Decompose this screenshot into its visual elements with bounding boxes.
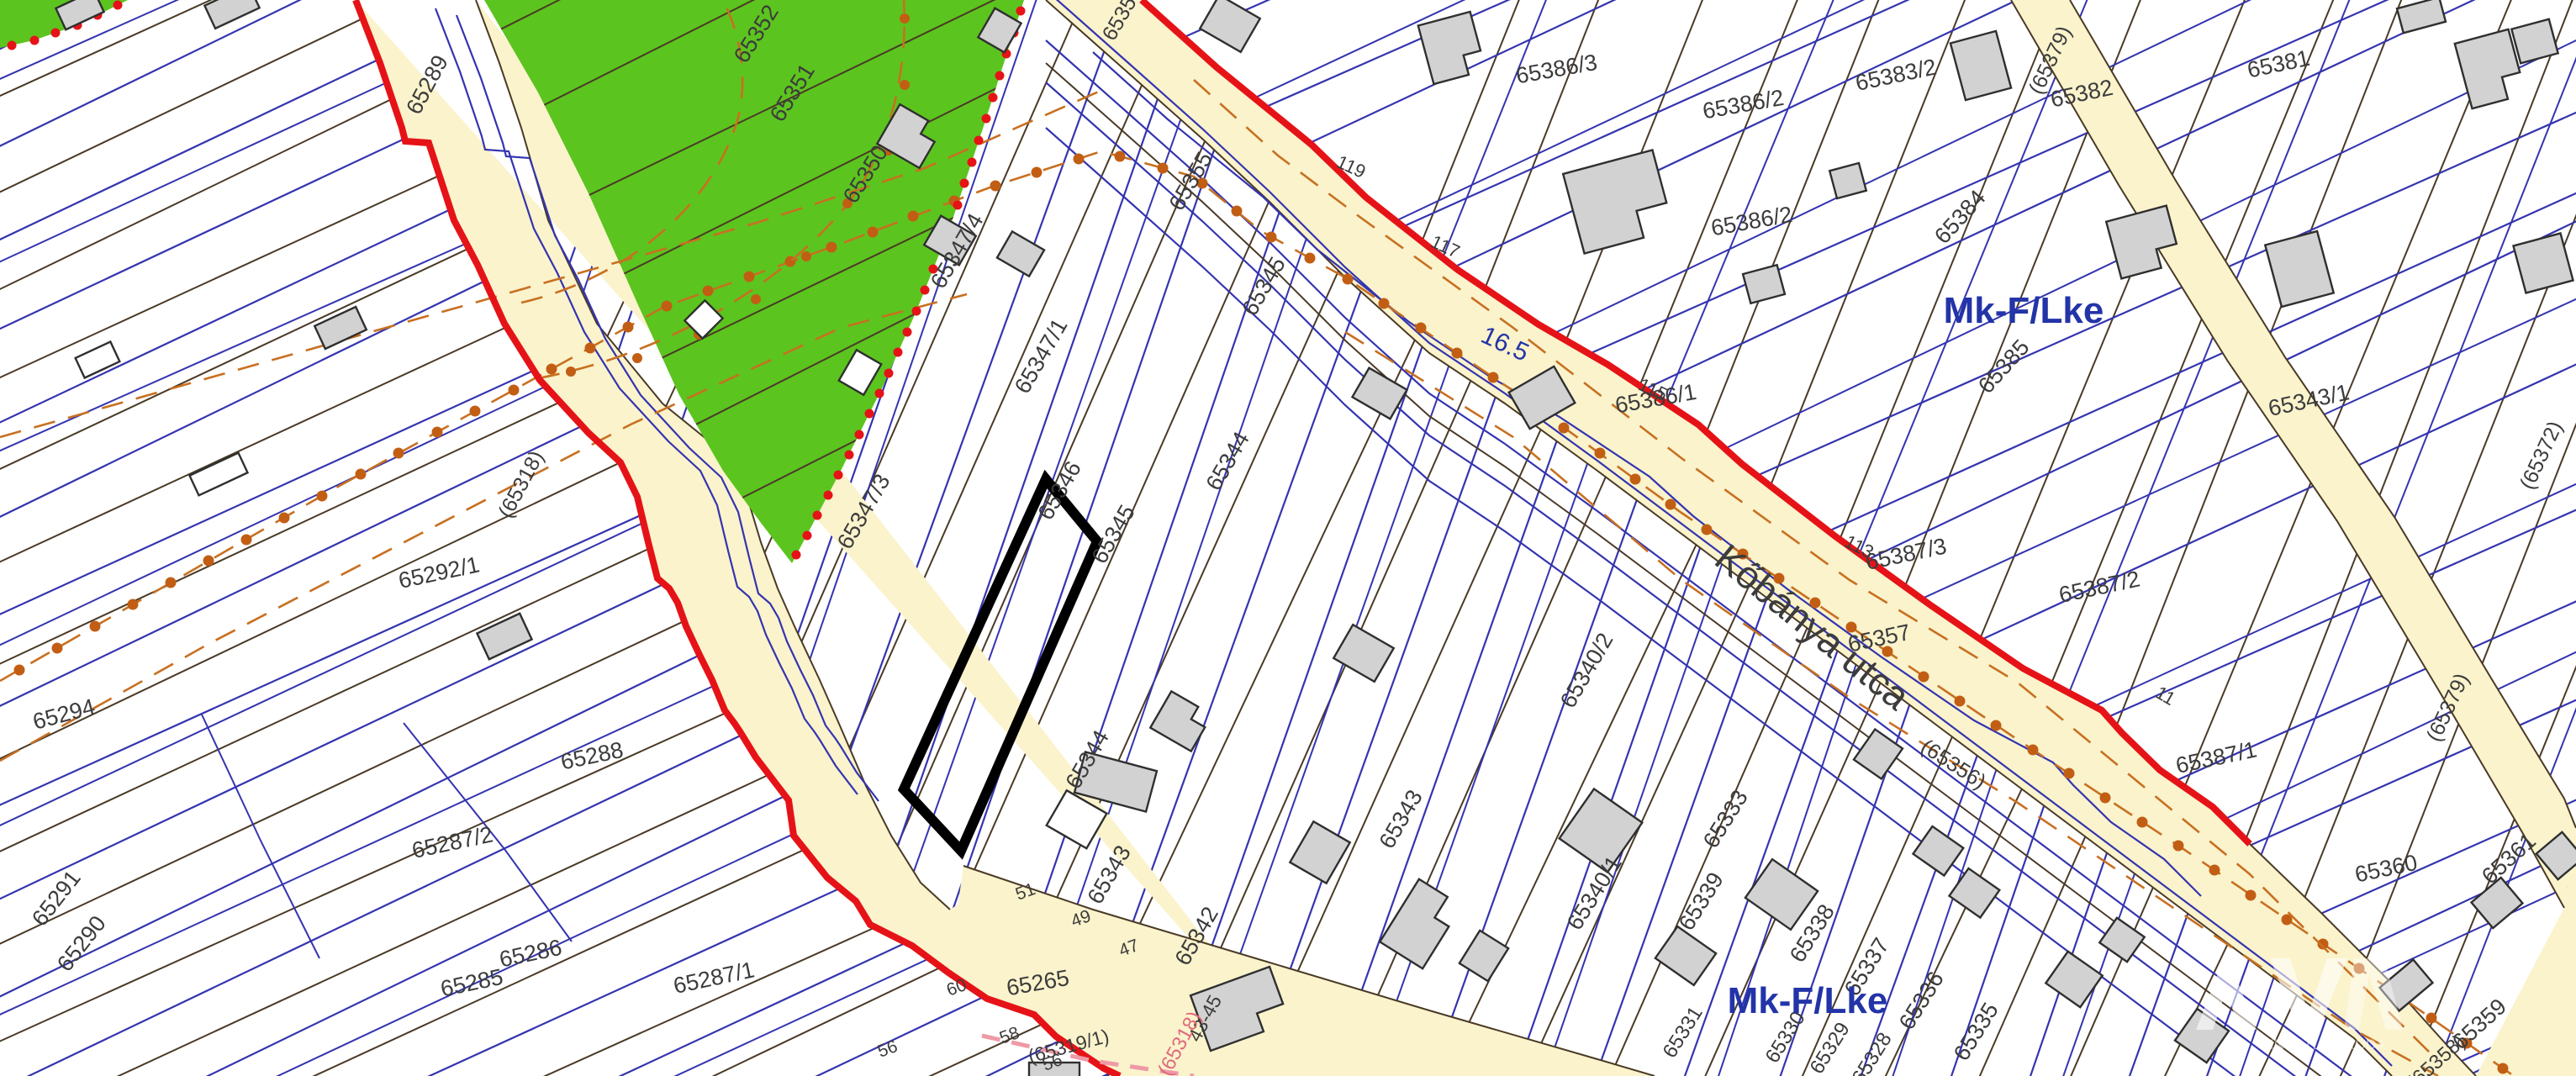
svg-text:Mk-F/Lke: Mk-F/Lke [1728,980,1888,1021]
svg-text:Mk-F/Lke: Mk-F/Lke [1944,290,2104,331]
svg-text:INGATLANIRODA: INGATLANIRODA [2270,1036,2386,1052]
